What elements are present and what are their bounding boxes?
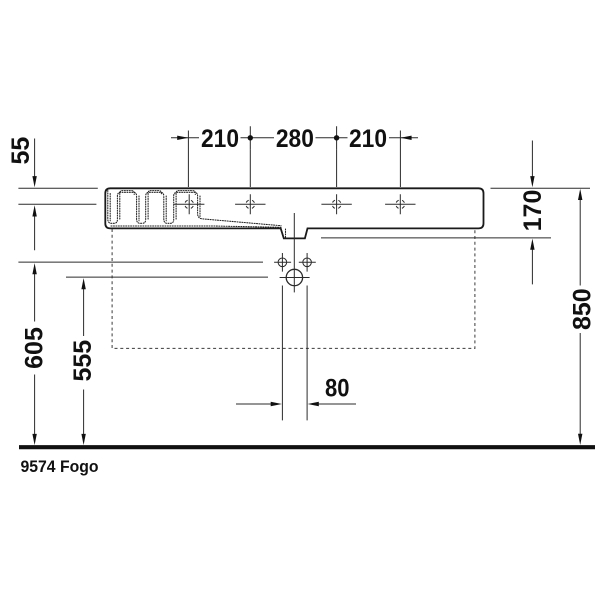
svg-text:170: 170 bbox=[519, 190, 547, 232]
svg-text:9574 Fogo: 9574 Fogo bbox=[21, 458, 99, 476]
svg-text:55: 55 bbox=[7, 137, 35, 165]
svg-text:210: 210 bbox=[349, 125, 387, 153]
svg-text:850: 850 bbox=[569, 288, 597, 330]
svg-text:80: 80 bbox=[325, 375, 350, 403]
svg-text:280: 280 bbox=[276, 125, 314, 153]
svg-text:210: 210 bbox=[201, 125, 239, 153]
svg-text:605: 605 bbox=[21, 327, 49, 369]
svg-text:555: 555 bbox=[69, 340, 97, 382]
